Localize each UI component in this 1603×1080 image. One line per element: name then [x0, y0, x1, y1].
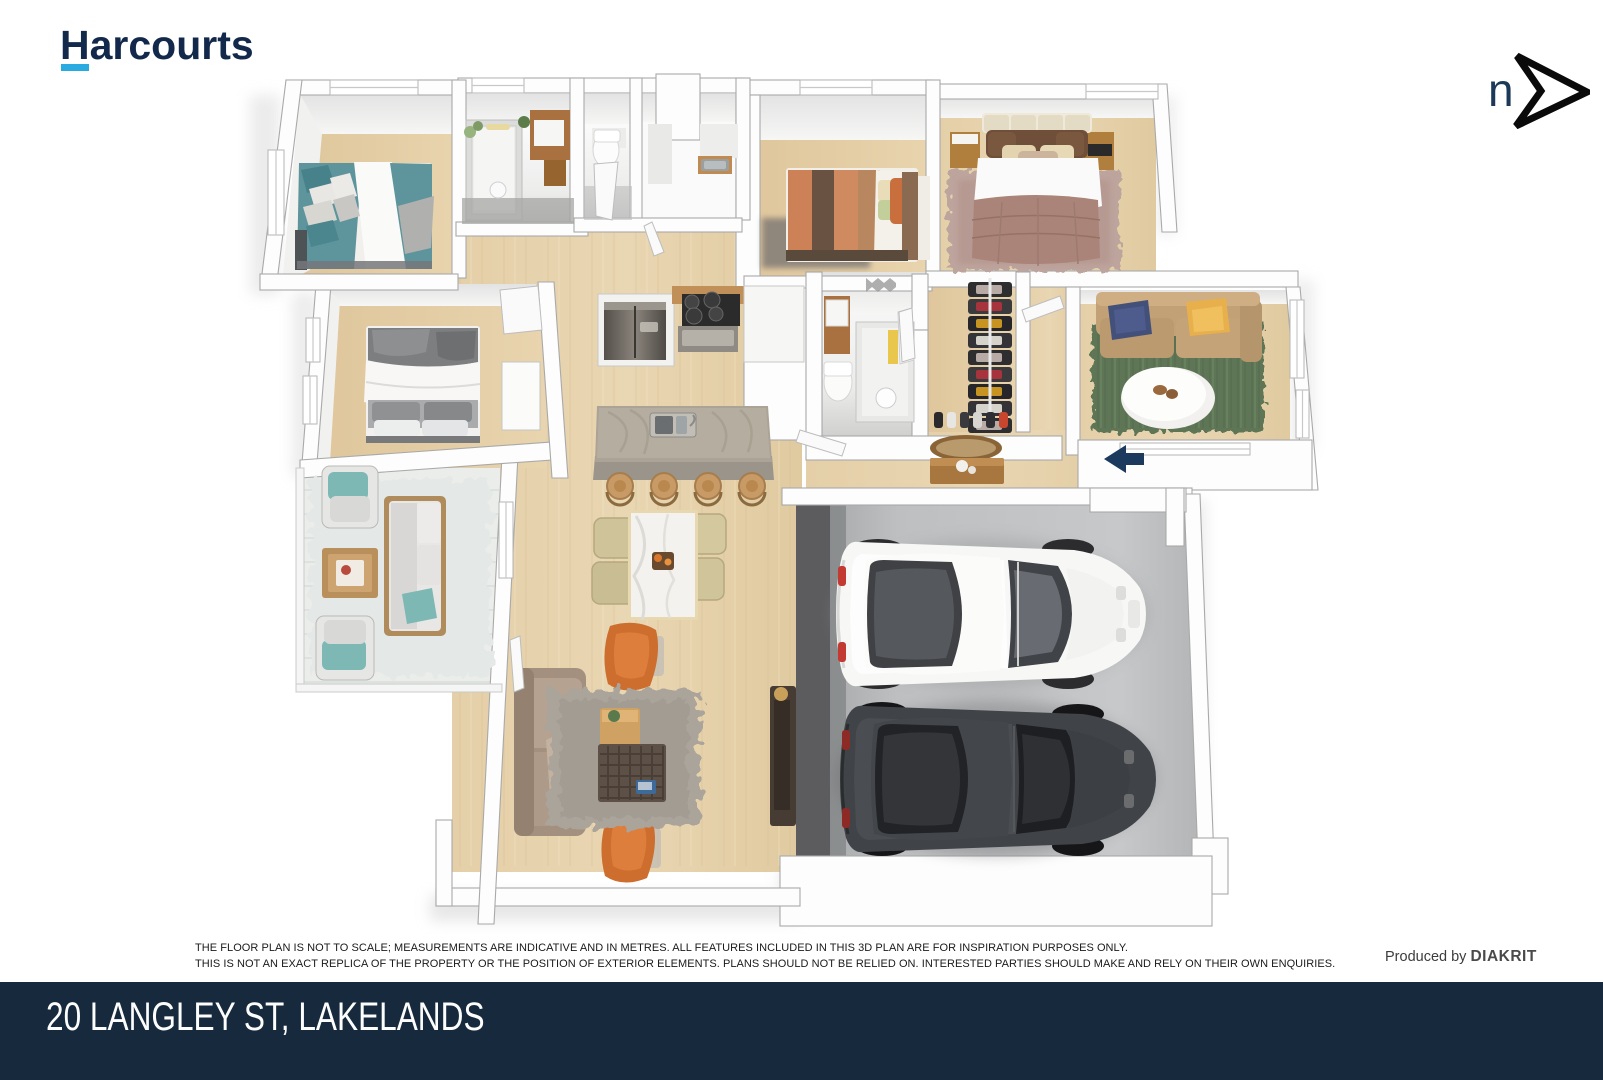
svg-text:n: n	[1488, 64, 1514, 116]
